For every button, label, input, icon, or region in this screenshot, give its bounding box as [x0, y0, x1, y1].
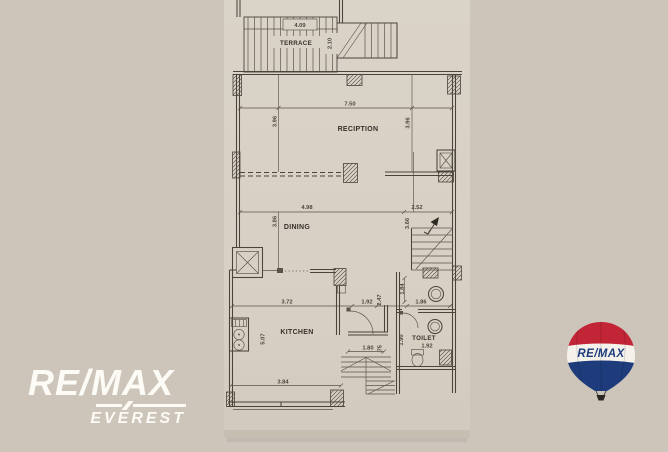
dining-stair-width-dim: 2.52 — [411, 205, 422, 211]
listing-image: 4.09 TERRACE 2.10 7.50 3.96 3.96 RECIPTI… — [0, 0, 668, 452]
dining-width-dim: 4.98 — [301, 205, 313, 211]
wordmark-everest-text: EVEREST — [28, 410, 186, 428]
kitchen-label: KITCHEN — [280, 329, 313, 336]
terrace-depth-dim: 2.10 — [328, 38, 334, 49]
dining-label: DINING — [284, 224, 311, 231]
toilet-depth-dim: 1.90 — [399, 334, 405, 345]
kitchen-depth-dim: 5.07 — [261, 333, 267, 344]
toilet-label: TOILET — [412, 335, 436, 342]
stair-width-dim: 1.80 — [362, 346, 373, 352]
reception-right-dim: 3.96 — [406, 117, 412, 129]
balloon-basket — [596, 391, 606, 401]
hall-door-dim: 1.92 — [361, 300, 372, 306]
wordmark-remax-text: RE/MAX — [28, 364, 186, 402]
hall-depth-dim: 2.47 — [377, 294, 383, 305]
terrace-label: TERRACE — [280, 40, 312, 47]
remax-everest-wordmark: RE/MAX EVEREST — [28, 364, 186, 427]
reception-left-dim: 3.96 — [273, 115, 279, 127]
reception-width-dim: 7.50 — [344, 102, 355, 108]
lobby-width-dim: 1.86 — [415, 300, 427, 306]
remax-balloon-logo: RE/MAX — [556, 314, 652, 414]
wordmark-divider — [96, 404, 186, 408]
kitchen-width-dim: 3.72 — [281, 300, 292, 306]
toilet-width-dim: 1.92 — [421, 344, 432, 350]
kitchen-bottom-dim: 3.84 — [277, 380, 289, 386]
dining-right-dim: 3.66 — [405, 217, 411, 229]
terrace-width-dim: 4.09 — [294, 23, 306, 29]
balloon-label: RE/MAX — [577, 348, 625, 360]
lobby-depth-dim: 1.84 — [400, 283, 406, 295]
reception-label: RECIPTION — [338, 126, 379, 133]
dining-left-dim: 3.86 — [273, 215, 279, 227]
